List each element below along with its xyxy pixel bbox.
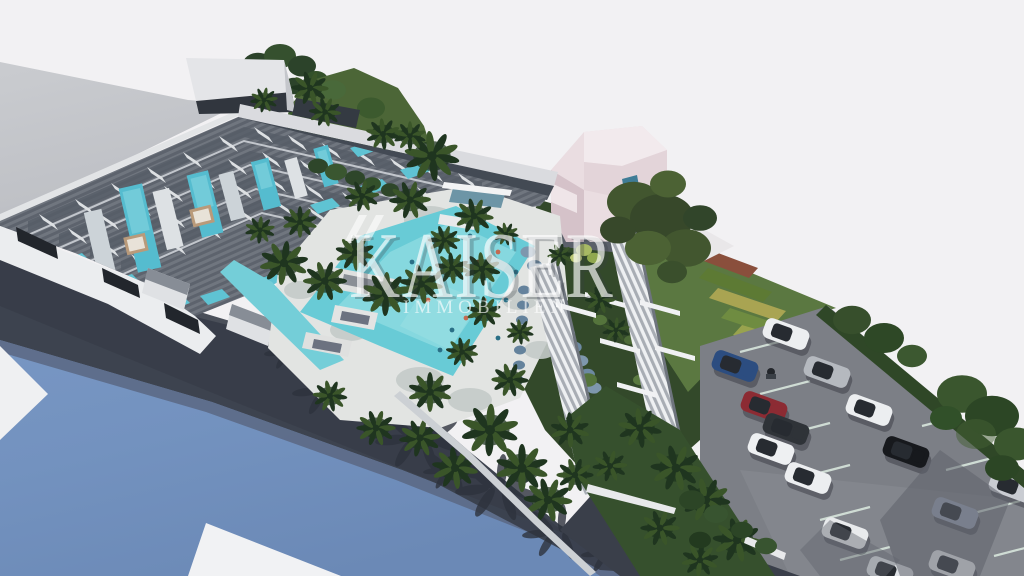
svg-text:IMMOBILIEN: IMMOBILIEN [403,297,569,318]
